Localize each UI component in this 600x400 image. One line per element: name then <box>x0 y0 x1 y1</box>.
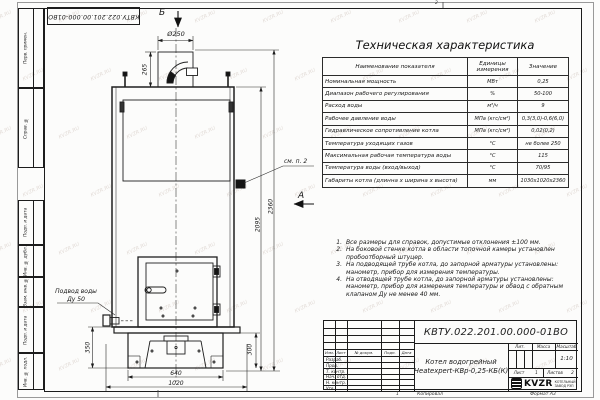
spec-cell: Диапазон рабочего регулирования <box>323 88 468 100</box>
spec-cell: Рабочее давление воды <box>323 113 468 125</box>
spec-header-name: Наименование показателя <box>323 58 468 76</box>
list-item: 4.На отводящей трубе котла, до запорной … <box>330 276 567 298</box>
tb-header-podp: Подп. <box>381 349 399 356</box>
sheet-value: 1 <box>530 368 543 377</box>
role-utv: Утв. <box>324 385 349 391</box>
spec-cell: °С <box>468 150 518 162</box>
spec-cell: МВт <box>468 76 518 88</box>
tb-header-data: Дата <box>399 349 414 356</box>
product-name-line2: Heatexpert-КВр-0,25-КБ(К) <box>414 367 508 376</box>
product-name: Котел водогрейный Heatexpert-КВр-0,25-КБ… <box>414 344 508 390</box>
table-row: Рабочее давление водыМПа (кгс/см²)0,3(3,… <box>323 113 569 125</box>
dim-350: 350 <box>85 334 92 362</box>
note-number: 4. <box>330 276 346 298</box>
tb-header-izm: Изм. <box>324 349 335 356</box>
spec-cell: не более 250 <box>518 137 569 149</box>
callout-see-note-2: см. п. 2 <box>284 158 307 165</box>
scale-label: Масштаб <box>555 343 578 350</box>
table-row: Максимальная рабочая температура воды°С1… <box>323 150 569 162</box>
zone-number-bottom: 1 <box>396 392 399 397</box>
table-row: Температура уходящих газов°Сне более 250 <box>323 137 569 149</box>
spec-cell: 1030х1020х2360 <box>518 175 569 187</box>
spec-cell: Температура воды (вход/выход) <box>323 162 468 174</box>
list-item: 3.На подводящей трубе котла, до запорной… <box>330 261 567 276</box>
sheets-label: Листов <box>543 368 567 377</box>
notes-list: 1.Все размеры для справок, допустимые от… <box>330 239 567 298</box>
table-row: Температура воды (вход/выход)°С70/95 <box>323 162 569 174</box>
zone-number-top: 2 <box>435 1 438 6</box>
kvzr-caption-line2: ЗАВОД РЭП <box>555 384 576 388</box>
kvzr-logo-caption: КОТЕЛЬНЫЙ ЗАВОД РЭП <box>555 380 576 388</box>
spec-cell: °С <box>468 162 518 174</box>
spec-table: Наименование показателя Единицы измерени… <box>322 57 569 188</box>
spec-cell: 0,25 <box>518 76 569 88</box>
boiler-body-outline <box>112 87 234 327</box>
spec-cell: м³/ч <box>468 100 518 112</box>
spec-cell: Габариты котла (длинна х ширина х высота… <box>323 175 468 187</box>
format-label: Формат А3 <box>518 392 568 397</box>
kvzr-logo-text: KVZR <box>524 379 553 389</box>
sheets-value: 2 <box>567 368 578 377</box>
spec-cell: Максимальная рабочая температура воды <box>323 150 468 162</box>
spec-cell: МПа (кгс/см²) <box>468 125 518 137</box>
boiler-base <box>114 327 240 368</box>
scale-value: 1:10 <box>555 350 578 368</box>
spec-header-value: Значение <box>518 58 569 76</box>
note-text: На боковой стенке котла в области топочн… <box>346 246 567 261</box>
dim-2360: 2360 <box>268 189 275 225</box>
spec-cell: Гидравлическое сопротивление котла <box>323 125 468 137</box>
view-b-label: Б <box>159 8 165 18</box>
spec-cell: МПа (кгс/см²) <box>468 113 518 125</box>
dim-265: 265 <box>142 57 149 83</box>
top-lifting-pins <box>123 72 230 87</box>
tb-header-docnum: № докум. <box>347 349 381 356</box>
water-inlet-label: Подвод воды <box>54 288 98 295</box>
table-row: Диапазон рабочего регулирования%50-100 <box>323 88 569 100</box>
manufacturer-logo: KVZR КОТЕЛЬНЫЙ ЗАВОД РЭП <box>508 377 578 390</box>
spec-cell: 0,02(0,2) <box>518 125 569 137</box>
drawing-sheet: KVZR.RUKVZR.RUKVZR.RUKVZR.RUKVZR.RUKVZR.… <box>0 0 600 400</box>
spec-header-row: Наименование показателя Единицы измерени… <box>323 58 569 76</box>
tb-header-list: Лист <box>335 349 347 356</box>
list-item: 2.На боковой стенке котла в области топо… <box>330 246 567 261</box>
table-row: Расход водым³/ч9 <box>323 100 569 112</box>
note-number: 1. <box>330 239 346 246</box>
spec-cell: 115 <box>518 150 569 162</box>
note-number: 3. <box>330 261 346 276</box>
spec-header-units: Единицы измерения <box>468 58 518 76</box>
table-row: Номинальная мощностьМВт0,25 <box>323 76 569 88</box>
dim-1020: 1020 <box>155 380 197 387</box>
spec-cell: 50-100 <box>518 88 569 100</box>
spec-cell: мм <box>468 175 518 187</box>
spec-cell: % <box>468 88 518 100</box>
spec-cell: Температура уходящих газов <box>323 137 468 149</box>
product-name-line1: Котел водогрейный <box>425 358 496 367</box>
note-number: 2. <box>330 246 346 261</box>
spec-cell: °С <box>468 137 518 149</box>
title-block: КВТУ.022.201.00.000-01ВО Котел водогрейн… <box>323 320 577 390</box>
mass-label: Масса <box>532 343 555 350</box>
copied-by-label: Копировал <box>405 392 455 397</box>
chimney-outline <box>158 52 198 87</box>
dim-300: 300 <box>247 336 254 364</box>
sampling-fitting <box>236 180 245 188</box>
spec-cell: 0,3(3,0)-0,6(6,0) <box>518 113 569 125</box>
lit-label: Лит. <box>508 343 532 350</box>
view-a-label: А <box>298 191 304 201</box>
note-text: На отводящей трубе котла, до запорной ар… <box>346 276 567 298</box>
dim-2095: 2095 <box>255 207 262 243</box>
list-item: 1.Все размеры для справок, допустимые от… <box>330 239 567 246</box>
spec-table-title: Техническая характеристика <box>322 38 568 52</box>
water-inlet-pipe <box>103 315 133 326</box>
water-inlet-dn50-label: Ду 50 <box>54 296 98 303</box>
furnace-door <box>138 257 220 327</box>
note-text: На подводящей трубе котла, до запорной а… <box>346 261 567 276</box>
table-row: Габариты котла (длинна х ширина х высота… <box>323 175 569 187</box>
table-row: Гидравлическое сопротивление котлаМПа (к… <box>323 125 569 137</box>
dim-diameter-250: Ø250 <box>155 30 197 38</box>
sheet-label: Лист <box>508 368 530 377</box>
kvzr-logo-icon <box>511 378 522 389</box>
spec-cell: Номинальная мощность <box>323 76 468 88</box>
spec-cell: 9 <box>518 100 569 112</box>
note-text: Все размеры для справок, допустимые откл… <box>346 239 541 246</box>
title-block-doc-number: КВТУ.022.201.00.000-01ВО <box>414 321 578 343</box>
spec-cell: Расход воды <box>323 100 468 112</box>
spec-cell: 70/95 <box>518 162 569 174</box>
dim-640: 640 <box>155 370 197 377</box>
